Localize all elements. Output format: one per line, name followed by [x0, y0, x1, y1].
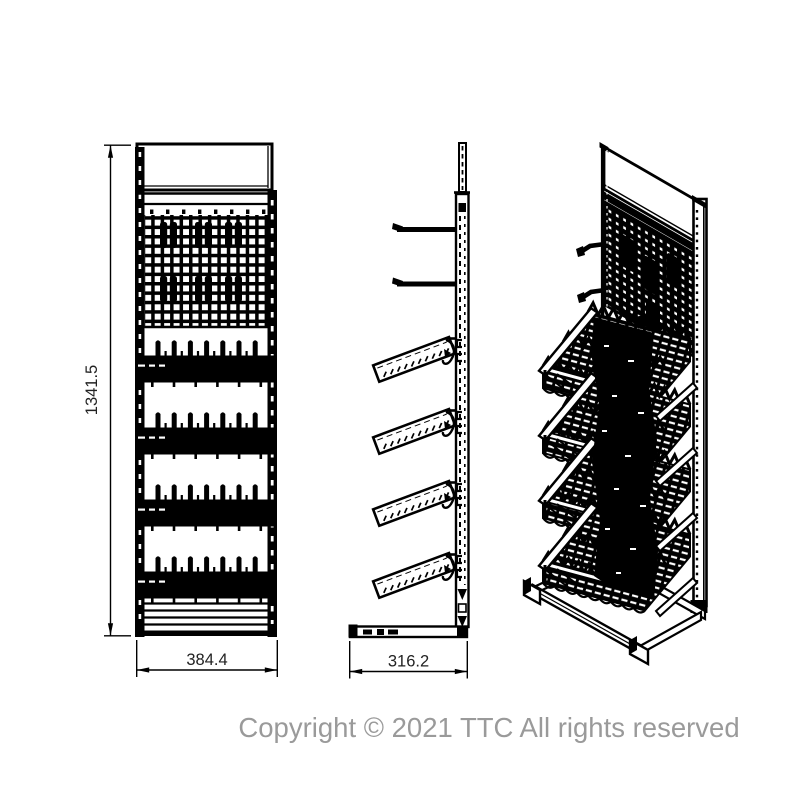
svg-text:Copyright © 2021 TTC All right: Copyright © 2021 TTC All rights reserved	[238, 712, 739, 743]
svg-text:384.4: 384.4	[186, 651, 227, 669]
svg-text:316.2: 316.2	[388, 653, 429, 671]
svg-text:1341.5: 1341.5	[83, 365, 101, 415]
